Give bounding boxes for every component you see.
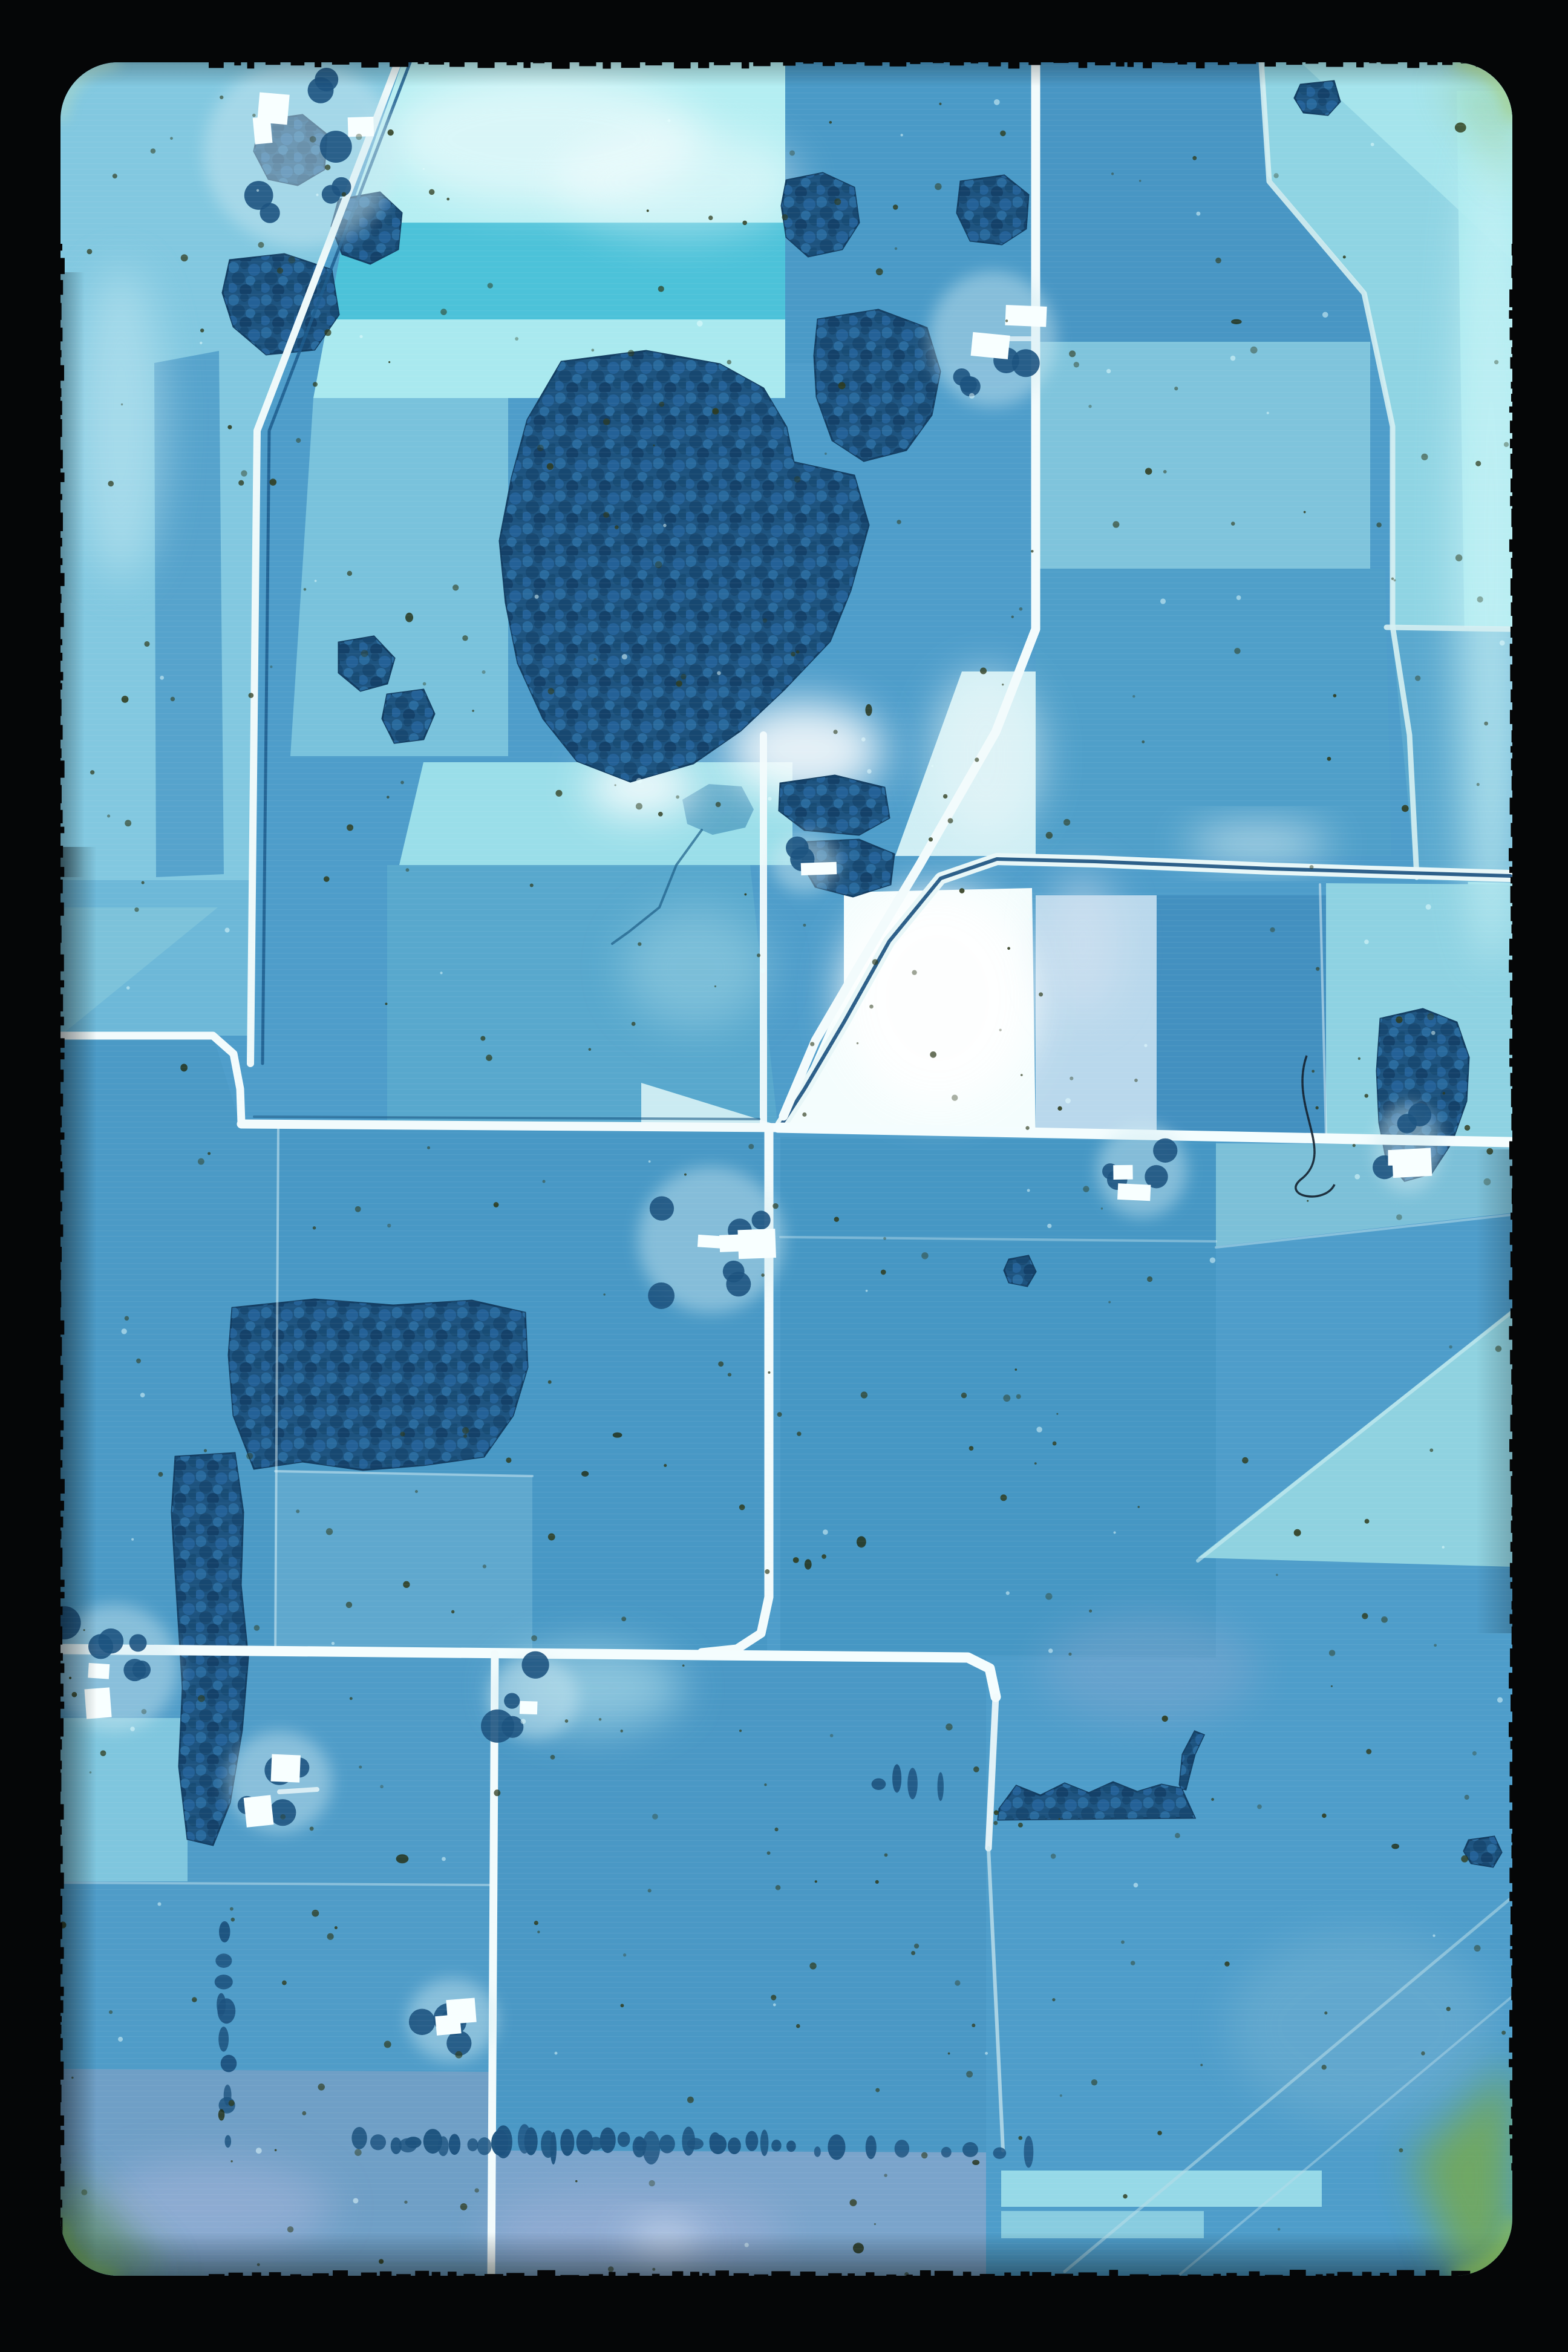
edge-nick	[1511, 1308, 1513, 1319]
edge-nick	[60, 2016, 62, 2022]
edge-nick	[229, 2273, 243, 2276]
edge-nick	[1511, 1965, 1513, 1978]
edge-nick	[1511, 1741, 1513, 1749]
edge-nick	[1509, 867, 1513, 873]
edge-nick	[1510, 1563, 1513, 1578]
edge-nick	[1509, 289, 1513, 307]
edge-nick	[1511, 886, 1513, 903]
edge-nick	[533, 62, 544, 63]
edge-nick	[1509, 2125, 1513, 2134]
edge-nick	[800, 2272, 815, 2276]
edge-nick	[313, 2273, 329, 2276]
edge-nick	[1511, 2163, 1513, 2171]
edge-nick	[60, 1202, 62, 1212]
edge-nick	[60, 1592, 65, 1599]
edge-nick	[1032, 2272, 1051, 2276]
edge-nick	[1509, 310, 1513, 319]
slide-mount	[0, 0, 1568, 2352]
edge-nick	[1511, 394, 1513, 402]
edge-nick	[1512, 244, 1513, 255]
edge-nick	[60, 1718, 64, 1736]
edge-nick	[1511, 877, 1513, 884]
edge-nick	[1509, 1142, 1513, 1160]
edge-nick	[478, 62, 495, 68]
edge-nick	[1226, 2273, 1236, 2276]
edge-nick	[1510, 1935, 1513, 1946]
edge-nick	[1509, 1722, 1513, 1737]
edge-nick	[579, 62, 596, 66]
edge-nick	[60, 1172, 64, 1191]
edge-nick	[1381, 62, 1398, 64]
edge-nick	[361, 2273, 377, 2276]
edge-nick	[1214, 2274, 1221, 2276]
edge-nick	[561, 2275, 580, 2276]
edge-nick	[1509, 1058, 1513, 1067]
edge-nick	[1510, 496, 1513, 506]
edge-nick	[60, 926, 62, 943]
edge-nick	[1509, 1673, 1513, 1688]
edge-nick	[1512, 1845, 1513, 1858]
edge-nick	[1509, 1868, 1513, 1883]
edge-nick	[60, 1772, 61, 1791]
edge-nick	[60, 2218, 62, 2236]
edge-nick	[1511, 347, 1513, 354]
edge-nick	[1290, 2270, 1306, 2276]
edge-nick	[1338, 2272, 1353, 2276]
edge-nick	[1511, 454, 1513, 469]
edge-nick	[754, 2275, 768, 2276]
edge-nick	[234, 62, 241, 65]
edge-nick	[506, 2273, 524, 2276]
edge-nick	[361, 62, 378, 68]
edge-nick	[60, 1547, 62, 1566]
edge-nick	[60, 512, 63, 531]
edge-nick	[1511, 1415, 1513, 1432]
edge-nick	[1316, 2274, 1323, 2276]
edge-nick	[1511, 759, 1513, 771]
edge-nick	[1511, 479, 1513, 492]
edge-nick	[60, 725, 63, 739]
edge-nick	[432, 2272, 440, 2276]
edge-nick	[60, 1964, 62, 1975]
edge-nick	[1509, 1892, 1513, 1901]
edge-nick	[60, 2000, 64, 2013]
edge-nick	[628, 2273, 640, 2276]
edge-nick	[848, 2273, 855, 2276]
edge-nick	[1380, 2273, 1389, 2276]
edge-nick	[60, 2130, 64, 2145]
edge-nick	[60, 494, 62, 500]
edge-nick	[1511, 266, 1513, 278]
edge-nick	[291, 62, 305, 65]
edge-nick	[803, 62, 814, 64]
edge-nick	[621, 62, 640, 68]
edge-nick	[1510, 1350, 1513, 1364]
edge-nick	[988, 62, 1001, 67]
edge-nick	[1326, 62, 1343, 67]
edge-nick	[1511, 746, 1513, 753]
edge-nick	[935, 2271, 953, 2276]
edge-nick	[1021, 2272, 1030, 2276]
edge-nick	[1509, 939, 1513, 956]
edge-nick	[783, 62, 795, 66]
edge-nick	[60, 401, 62, 415]
edge-nick	[60, 1987, 64, 1996]
edge-nick	[1511, 1252, 1513, 1267]
edge-nick	[980, 2274, 995, 2276]
edge-nick	[247, 62, 255, 68]
edge-nick	[702, 2273, 709, 2276]
edge-nick	[1511, 509, 1513, 527]
edge-nick	[60, 1826, 62, 1835]
edge-nick	[485, 2274, 503, 2276]
edge-nick	[1079, 62, 1088, 68]
edge-nick	[1326, 2273, 1334, 2276]
edge-nick	[60, 980, 64, 987]
edge-nick	[1510, 644, 1513, 656]
edge-nick	[1510, 798, 1513, 815]
edge-nick	[60, 2085, 62, 2102]
edge-nick	[1509, 1785, 1513, 1803]
edge-nick	[60, 699, 62, 716]
edge-nick	[60, 1873, 64, 1889]
aerial-photograph	[0, 0, 1568, 2352]
edge-nick	[1511, 1213, 1513, 1220]
edge-nick	[537, 2270, 555, 2276]
edge-nick	[60, 760, 65, 777]
edge-nick	[390, 62, 408, 67]
edge-nick	[1509, 959, 1513, 972]
edge-nick	[60, 1579, 65, 1587]
edge-nick	[742, 62, 749, 68]
edge-nick	[1116, 62, 1125, 67]
edge-nick	[1476, 62, 1488, 67]
edge-nick	[1510, 664, 1513, 681]
edge-nick	[60, 558, 62, 565]
edge-nick	[1510, 981, 1513, 998]
edge-nick	[60, 573, 65, 586]
edge-nick	[60, 1132, 64, 1140]
edge-nick	[60, 748, 62, 758]
edge-nick	[60, 1761, 62, 1769]
edge-nick	[60, 1739, 62, 1749]
edge-nick	[60, 1517, 63, 1527]
edge-nick	[60, 1247, 62, 1262]
edge-nick	[60, 827, 64, 834]
edge-nick	[429, 62, 444, 65]
edge-nick	[1511, 558, 1513, 569]
edge-nick	[1079, 2272, 1097, 2276]
edge-nick	[1237, 62, 1256, 64]
edge-nick	[290, 2274, 301, 2276]
edge-nick	[1512, 924, 1513, 933]
edge-nick	[396, 2274, 411, 2276]
edge-nick	[449, 62, 465, 67]
edge-nick	[1509, 2037, 1513, 2052]
edge-nick	[60, 880, 63, 893]
edge-nick	[60, 1607, 62, 1615]
edge-nick	[652, 2274, 660, 2276]
edge-nick	[1510, 1949, 1513, 1958]
edge-nick	[698, 62, 709, 68]
edge-nick	[60, 1896, 62, 1915]
edge-nick	[1143, 62, 1152, 68]
edge-nick	[60, 1038, 65, 1048]
edge-nick	[1510, 1648, 1513, 1667]
edge-nick	[60, 2157, 61, 2164]
edge-nick	[1397, 2270, 1414, 2276]
edge-nick	[60, 1702, 64, 1709]
edge-nick	[60, 1922, 62, 1939]
edge-nick	[60, 258, 65, 274]
edge-nick	[609, 2272, 615, 2276]
edge-nick	[1053, 62, 1068, 63]
edge-nick	[60, 1479, 65, 1494]
edge-nick	[60, 1684, 64, 1696]
edge-nick	[209, 2274, 224, 2276]
vignette	[60, 62, 1512, 87]
edge-nick	[1109, 2270, 1118, 2276]
edge-nick	[60, 2038, 63, 2050]
edge-nick	[1442, 62, 1452, 65]
edge-nick	[60, 903, 64, 916]
edge-nick	[60, 2115, 64, 2126]
vignette	[1476, 1149, 1512, 1633]
edge-nick	[209, 62, 224, 68]
edge-nick	[60, 1337, 62, 1356]
edge-nick	[60, 244, 62, 250]
edge-nick	[1512, 1834, 1513, 1842]
edge-nick	[60, 2171, 65, 2187]
edge-nick	[60, 1804, 64, 1820]
edge-nick	[1511, 578, 1513, 596]
edge-nick	[380, 2272, 391, 2276]
edge-nick	[1509, 2010, 1513, 2027]
edge-nick	[1511, 1520, 1513, 1532]
edge-nick	[890, 62, 907, 67]
edge-nick	[1509, 1439, 1513, 1452]
edge-nick	[60, 1292, 61, 1307]
edge-nick	[60, 303, 62, 320]
edge-nick	[1362, 2272, 1372, 2276]
edge-nick	[506, 62, 517, 65]
edge-nick	[1511, 690, 1513, 702]
film-striations	[60, 62, 1512, 2276]
edge-nick	[1511, 823, 1513, 837]
edge-nick	[60, 1653, 63, 1661]
edge-nick	[60, 1947, 64, 1959]
edge-nick	[1511, 603, 1513, 616]
edge-nick	[1265, 2275, 1283, 2276]
edge-nick	[60, 1224, 63, 1236]
edge-nick	[1510, 1614, 1513, 1624]
edge-nick	[1512, 1627, 1513, 1645]
edge-nick	[1356, 62, 1364, 67]
edge-nick	[1511, 1582, 1513, 1589]
edge-nick	[1510, 420, 1513, 433]
edge-nick	[1511, 1089, 1513, 1107]
edge-nick	[60, 1460, 62, 1468]
edge-nick	[933, 62, 944, 63]
edge-nick	[1028, 62, 1040, 65]
edge-nick	[266, 62, 281, 65]
edge-nick	[674, 62, 691, 68]
edge-nick	[843, 62, 856, 64]
edge-nick	[60, 1437, 63, 1449]
edge-nick	[866, 2272, 874, 2276]
edge-nick	[1427, 62, 1437, 65]
edge-nick	[1511, 906, 1513, 921]
edge-nick	[1510, 1166, 1513, 1175]
edge-nick	[1509, 2059, 1513, 2068]
edge-nick	[1095, 62, 1111, 65]
edge-nick	[523, 62, 531, 68]
edge-nick	[60, 388, 61, 397]
edge-nick	[448, 2272, 457, 2276]
edge-nick	[1511, 1369, 1513, 1384]
edge-nick	[1196, 62, 1204, 68]
edge-nick	[60, 672, 63, 681]
edge-nick	[1510, 357, 1513, 368]
edge-nick	[716, 2270, 729, 2276]
edge-nick	[60, 1321, 64, 1335]
photo-clip-group	[47, 59, 1527, 2276]
edge-nick	[252, 2272, 261, 2276]
edge-nick	[1265, 62, 1276, 67]
edge-nick	[269, 2272, 281, 2276]
edge-nick	[60, 419, 62, 437]
edge-nick	[60, 1365, 63, 1380]
edge-nick	[60, 995, 63, 1011]
edge-nick	[60, 1501, 64, 1511]
edge-nick	[963, 2272, 972, 2276]
edge-nick	[1161, 2275, 1179, 2276]
edge-nick	[415, 2271, 429, 2276]
edge-nick	[1510, 1232, 1513, 1245]
edge-nick	[60, 1394, 64, 1408]
edge-nick	[333, 2270, 348, 2276]
edge-nick	[920, 2270, 931, 2276]
edge-nick	[1128, 62, 1134, 67]
edge-nick	[714, 62, 730, 65]
edge-nick	[60, 1017, 64, 1025]
edge-nick	[1509, 1039, 1513, 1055]
edge-nick	[60, 1116, 62, 1128]
edge-nick	[1510, 2138, 1513, 2155]
edge-nick	[1187, 2275, 1201, 2276]
edge-nick	[463, 2274, 475, 2276]
edge-nick	[645, 62, 662, 65]
edge-nick	[1511, 627, 1513, 638]
edge-nick	[60, 450, 63, 469]
edge-nick	[1369, 62, 1376, 63]
edge-nick	[1451, 2271, 1470, 2276]
edge-nick	[1461, 62, 1472, 64]
edge-nick	[1509, 407, 1513, 413]
edge-nick	[589, 2274, 603, 2276]
edge-nick	[1512, 1395, 1513, 1405]
edge-nick	[60, 955, 64, 972]
edge-nick	[60, 2062, 64, 2080]
edge-nick	[1512, 1188, 1513, 1204]
edge-nick	[60, 785, 62, 803]
edge-nick	[60, 867, 64, 877]
edge-nick	[315, 62, 321, 67]
edge-nick	[1511, 1114, 1513, 1131]
edge-nick	[771, 2271, 790, 2276]
edge-nick	[1407, 62, 1419, 68]
edge-nick	[690, 2272, 699, 2276]
edge-nick	[1509, 1326, 1513, 1340]
edge-nick	[672, 2271, 683, 2276]
edge-nick	[1474, 2272, 1489, 2276]
edge-nick	[1008, 62, 1020, 68]
edge-nick	[60, 613, 64, 627]
edge-nick	[60, 1161, 62, 1169]
edge-nick	[603, 62, 610, 69]
edge-nick	[1512, 1601, 1513, 1610]
edge-nick	[1163, 62, 1175, 63]
edge-nick	[734, 2273, 749, 2276]
edge-nick	[60, 365, 64, 381]
edge-nick	[1055, 2274, 1073, 2276]
edge-nick	[1286, 62, 1302, 65]
edge-nick	[60, 472, 65, 482]
edge-nick	[60, 639, 62, 645]
edge-nick	[864, 62, 882, 66]
edge-nick	[332, 62, 350, 65]
edge-nick	[1511, 1020, 1513, 1028]
edge-nick	[60, 280, 63, 295]
edge-nick	[60, 1530, 62, 1539]
edge-nick	[1510, 327, 1513, 340]
edge-nick	[60, 350, 62, 358]
edge-nick	[1178, 62, 1187, 65]
edge-nick	[1511, 1476, 1513, 1495]
edge-nick	[950, 62, 964, 65]
edge-nick	[60, 538, 62, 546]
edge-nick	[1509, 848, 1513, 861]
edge-nick	[753, 62, 770, 66]
edge-nick	[60, 1626, 62, 1644]
edge-nick	[1426, 2270, 1440, 2276]
edge-nick	[60, 1270, 61, 1280]
edge-nick	[418, 62, 425, 64]
edge-nick	[1511, 382, 1513, 388]
edge-nick	[1511, 2107, 1513, 2119]
edge-nick	[1004, 2273, 1011, 2276]
edge-nick	[1511, 1073, 1513, 1086]
edge-nick	[60, 683, 62, 690]
edge-nick	[1511, 1906, 1513, 1924]
edge-nick	[1511, 1508, 1513, 1516]
edge-nick	[60, 1070, 64, 1082]
edge-nick	[1249, 2272, 1260, 2276]
edge-nick	[60, 594, 62, 603]
edge-nick	[1509, 1280, 1513, 1299]
edge-nick	[60, 328, 62, 342]
edge-nick	[971, 62, 978, 64]
edge-nick	[60, 810, 63, 823]
edge-nick	[60, 2200, 62, 2207]
edge-nick	[60, 1145, 62, 1155]
edge-nick	[1511, 1542, 1513, 1552]
edge-nick	[910, 62, 920, 64]
edge-nick	[1305, 62, 1318, 64]
edge-nick	[1130, 2274, 1149, 2276]
edge-nick	[1509, 540, 1513, 552]
edge-nick	[1510, 1459, 1513, 1471]
